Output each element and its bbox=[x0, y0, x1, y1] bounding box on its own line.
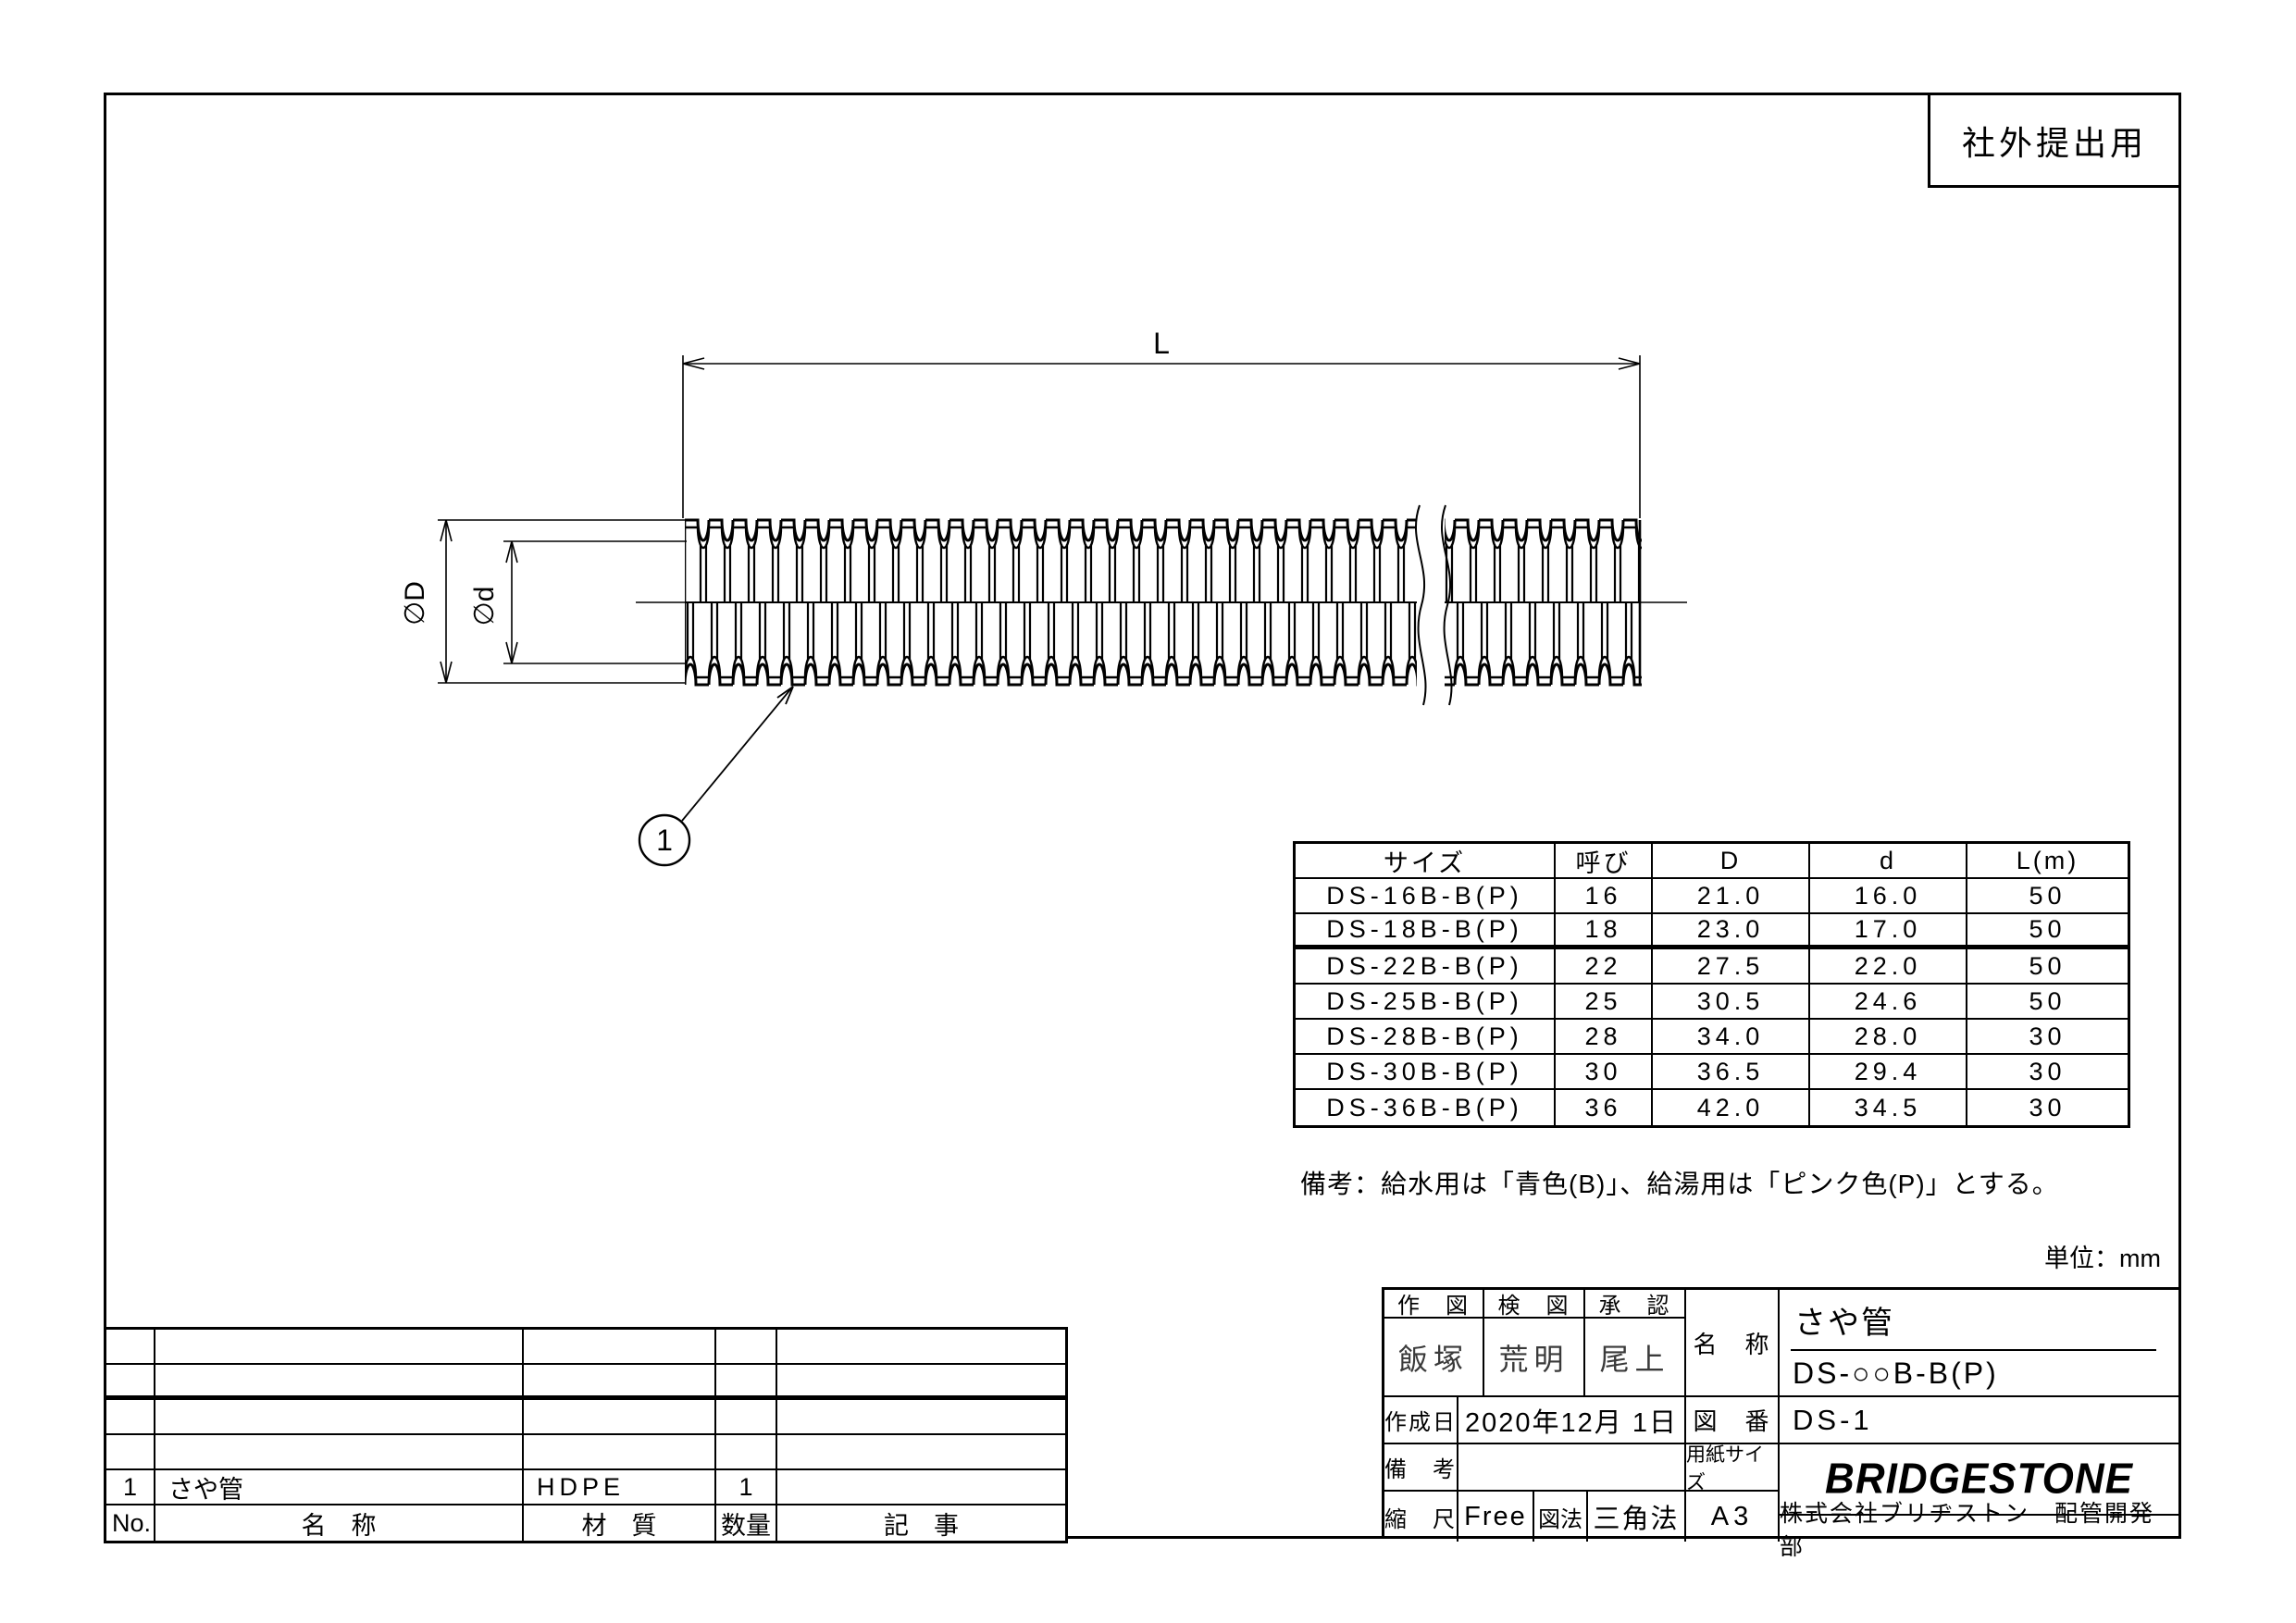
size-cell: DS-16B-B(P) bbox=[1296, 879, 1556, 914]
size-cell: 34.5 bbox=[1810, 1090, 1967, 1125]
drawing-no-value: DS-1 bbox=[1780, 1397, 2178, 1444]
scale-value: Free bbox=[1458, 1492, 1534, 1542]
paper-size-value: A3 bbox=[1686, 1492, 1780, 1542]
parts-empty-cell bbox=[777, 1400, 1065, 1435]
dimension-length bbox=[683, 355, 1640, 518]
drawing-no-label: 図 番 bbox=[1686, 1397, 1780, 1444]
projection-value: 三角法 bbox=[1588, 1492, 1686, 1542]
parts-item-remarks bbox=[777, 1470, 1065, 1505]
parts-header-material: 材 質 bbox=[524, 1505, 716, 1541]
parts-empty-cell bbox=[106, 1400, 155, 1435]
parts-header-qty: 数量 bbox=[716, 1505, 777, 1541]
title-block: 作 図 検 図 承 認 飯塚 荒明 尾上 名 称 さや管 DS-○○B-B(P)… bbox=[1382, 1287, 2181, 1539]
size-cell: 50 bbox=[1967, 879, 2128, 914]
corrugated-tube bbox=[685, 520, 1647, 685]
size-cell: 22 bbox=[1556, 949, 1653, 985]
size-cell: 24.6 bbox=[1810, 985, 1967, 1020]
size-cell: DS-18B-B(P) bbox=[1296, 914, 1556, 949]
size-table-header: D bbox=[1653, 844, 1810, 879]
drawing-sheet: 社外提出用 bbox=[0, 0, 2296, 1623]
size-cell: DS-36B-B(P) bbox=[1296, 1090, 1556, 1125]
dimension-inner-dia-label: ∅d bbox=[469, 587, 500, 626]
size-cell: 21.0 bbox=[1653, 879, 1810, 914]
parts-empty-cell bbox=[155, 1365, 524, 1400]
parts-empty-cell bbox=[155, 1330, 524, 1365]
size-cell: 34.0 bbox=[1653, 1020, 1810, 1055]
size-cell: 42.0 bbox=[1653, 1090, 1810, 1125]
size-cell: 30 bbox=[1967, 1020, 2128, 1055]
balloon-number: 1 bbox=[656, 824, 673, 857]
size-cell: 50 bbox=[1967, 949, 2128, 985]
parts-empty-cell bbox=[106, 1365, 155, 1400]
parts-empty-cell bbox=[777, 1435, 1065, 1470]
parts-empty-cell bbox=[155, 1435, 524, 1470]
parts-empty-cell bbox=[106, 1330, 155, 1365]
name-label: 名 称 bbox=[1686, 1290, 1780, 1397]
parts-empty-cell bbox=[716, 1435, 777, 1470]
parts-item-no: 1 bbox=[106, 1470, 155, 1505]
size-cell: 50 bbox=[1967, 914, 2128, 949]
parts-empty-cell bbox=[716, 1365, 777, 1400]
size-table-header: サイズ bbox=[1296, 844, 1556, 879]
parts-header-no: No. bbox=[106, 1505, 155, 1541]
parts-empty-cell bbox=[716, 1400, 777, 1435]
approved-label: 承 認 bbox=[1585, 1290, 1686, 1319]
size-cell: 28.0 bbox=[1810, 1020, 1967, 1055]
size-cell: 30 bbox=[1967, 1055, 2128, 1090]
size-cell: 30 bbox=[1556, 1055, 1653, 1090]
unit-label: 単位：mm bbox=[1976, 1238, 2161, 1274]
size-cell: 30.5 bbox=[1653, 985, 1810, 1020]
dimension-length-label: L bbox=[1153, 327, 1170, 360]
parts-empty-cell bbox=[524, 1435, 716, 1470]
size-cell: 17.0 bbox=[1810, 914, 1967, 949]
remarks-value bbox=[1458, 1444, 1686, 1492]
parts-item-name: さや管 bbox=[155, 1470, 524, 1505]
size-cell: 30 bbox=[1967, 1090, 2128, 1125]
size-cell: 25 bbox=[1556, 985, 1653, 1020]
color-note: 備考：給水用は「青色(B)」、給湯用は「ピンク色(P)」とする。 bbox=[1300, 1164, 2059, 1201]
size-cell: 18 bbox=[1556, 914, 1653, 949]
size-cell: DS-28B-B(P) bbox=[1296, 1020, 1556, 1055]
size-table-header: d bbox=[1810, 844, 1967, 879]
parts-empty-cell bbox=[155, 1400, 524, 1435]
product-model: DS-○○B-B(P) bbox=[1780, 1351, 2178, 1395]
parts-empty-cell bbox=[716, 1330, 777, 1365]
size-table: サイズ 呼び D d L(m) DS-16B-B(P) 16 21.0 16.0… bbox=[1293, 841, 2130, 1128]
size-cell: 36 bbox=[1556, 1090, 1653, 1125]
name-value-cell: さや管 DS-○○B-B(P) bbox=[1780, 1290, 2178, 1397]
size-cell: DS-22B-B(P) bbox=[1296, 949, 1556, 985]
size-cell: 22.0 bbox=[1810, 949, 1967, 985]
paper-size-label: 用紙サイズ bbox=[1686, 1444, 1780, 1492]
parts-empty-cell bbox=[777, 1330, 1065, 1365]
size-table-header: L(m) bbox=[1967, 844, 2128, 879]
scale-label: 縮 尺 bbox=[1384, 1492, 1458, 1542]
parts-table: 1 さや管 HDPE 1 No. 名 称 材 質 数量 記 事 bbox=[104, 1327, 1068, 1543]
projection-label: 図法 bbox=[1534, 1492, 1588, 1542]
company-name: 株式会社ブリヂストン 配管開発部 bbox=[1780, 1516, 2178, 1542]
size-cell: 27.5 bbox=[1653, 949, 1810, 985]
date-value: 2020年12月 1日 bbox=[1458, 1397, 1686, 1444]
size-cell: 28 bbox=[1556, 1020, 1653, 1055]
size-cell: 29.4 bbox=[1810, 1055, 1967, 1090]
product-name: さや管 bbox=[1780, 1290, 2178, 1349]
drawn-by-name: 飯塚 bbox=[1384, 1319, 1484, 1397]
dimension-outer-dia-label: ∅D bbox=[400, 581, 430, 626]
parts-empty-cell bbox=[106, 1435, 155, 1470]
parts-empty-cell bbox=[524, 1330, 716, 1365]
size-cell: 16 bbox=[1556, 879, 1653, 914]
drawn-label: 作 図 bbox=[1384, 1290, 1484, 1319]
size-cell: DS-25B-B(P) bbox=[1296, 985, 1556, 1020]
parts-empty-cell bbox=[777, 1365, 1065, 1400]
parts-empty-cell bbox=[524, 1400, 716, 1435]
size-cell: 16.0 bbox=[1810, 879, 1967, 914]
parts-item-material: HDPE bbox=[524, 1470, 716, 1505]
size-cell: 50 bbox=[1967, 985, 2128, 1020]
size-cell: 23.0 bbox=[1653, 914, 1810, 949]
checked-by-name: 荒明 bbox=[1484, 1319, 1585, 1397]
remarks-label: 備 考 bbox=[1384, 1444, 1458, 1492]
size-cell: 36.5 bbox=[1653, 1055, 1810, 1090]
parts-empty-cell bbox=[524, 1365, 716, 1400]
parts-header-name: 名 称 bbox=[155, 1505, 524, 1541]
size-table-header: 呼び bbox=[1556, 844, 1653, 879]
approved-by-name: 尾上 bbox=[1585, 1319, 1686, 1397]
parts-header-remarks: 記 事 bbox=[777, 1505, 1065, 1541]
parts-item-qty: 1 bbox=[716, 1470, 777, 1505]
date-label: 作成日 bbox=[1384, 1397, 1458, 1444]
size-cell: DS-30B-B(P) bbox=[1296, 1055, 1556, 1090]
checked-label: 検 図 bbox=[1484, 1290, 1585, 1319]
